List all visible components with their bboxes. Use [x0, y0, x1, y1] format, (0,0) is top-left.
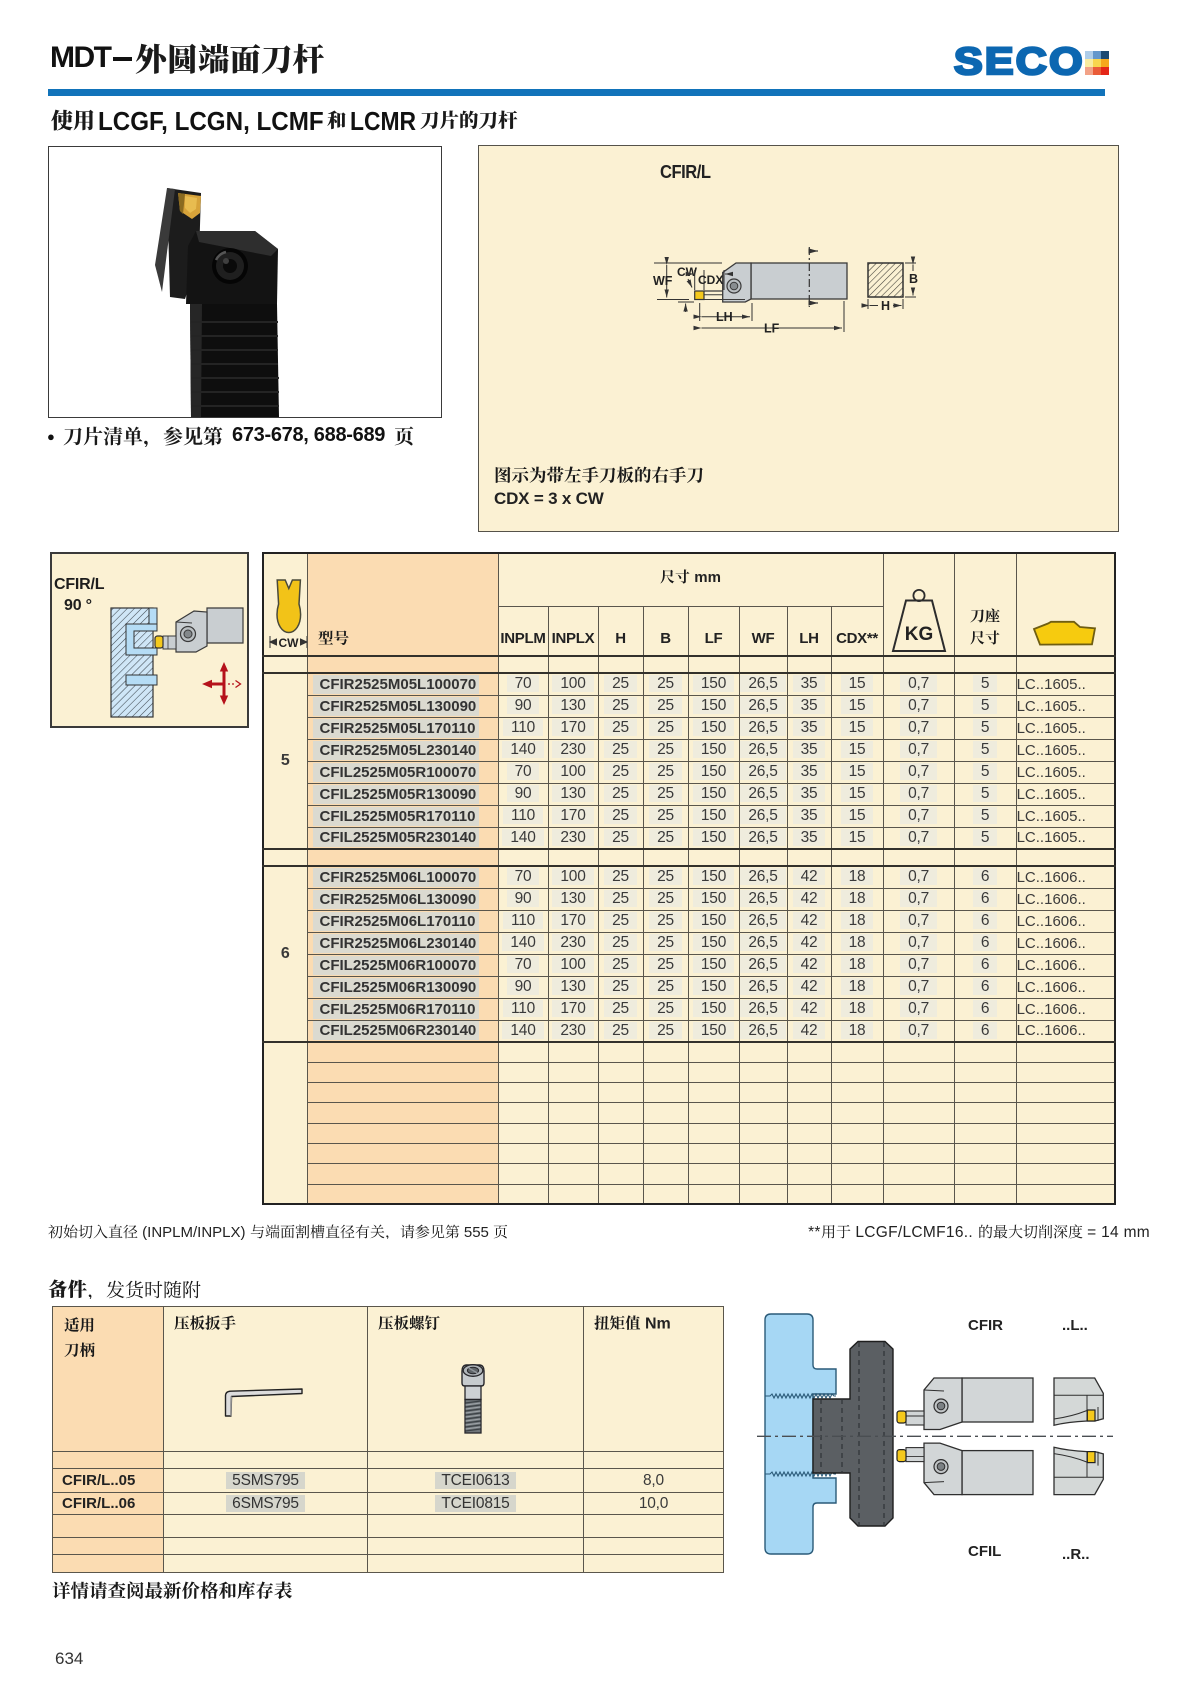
svg-text:H: H — [881, 299, 890, 313]
svg-text:B: B — [909, 272, 918, 286]
svg-text:CW: CW — [279, 636, 300, 650]
svg-text:WF: WF — [653, 274, 673, 288]
svg-text:LF: LF — [764, 322, 780, 336]
svg-text:LH: LH — [716, 310, 733, 324]
svg-text:KG: KG — [904, 624, 933, 645]
svg-text:CDX: CDX — [698, 273, 723, 287]
